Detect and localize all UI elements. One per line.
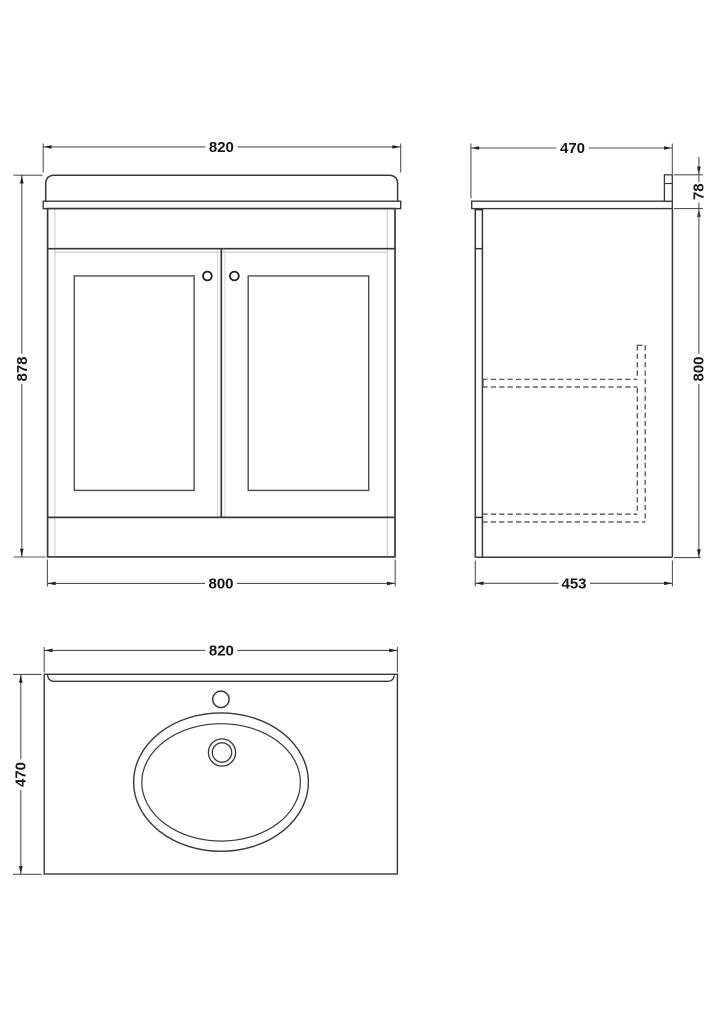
svg-text:78: 78	[691, 183, 708, 200]
svg-text:470: 470	[560, 140, 585, 157]
svg-text:470: 470	[12, 762, 29, 787]
svg-text:820: 820	[209, 643, 234, 660]
svg-text:453: 453	[561, 576, 586, 593]
svg-text:820: 820	[209, 139, 234, 156]
svg-text:800: 800	[208, 576, 233, 593]
svg-text:800: 800	[691, 356, 708, 381]
svg-text:878: 878	[14, 356, 31, 381]
